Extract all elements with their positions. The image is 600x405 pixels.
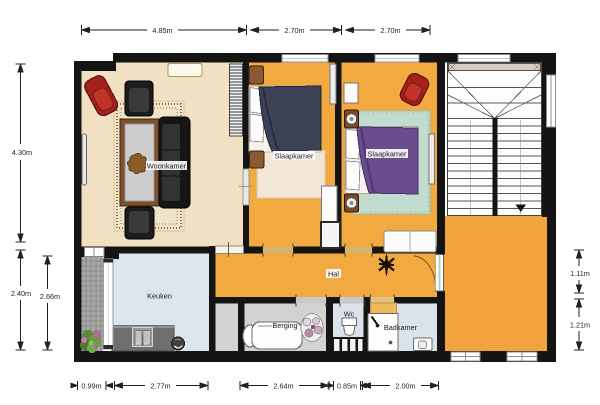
svg-text:Slaapkamer: Slaapkamer xyxy=(275,151,315,160)
svg-text:4.85m: 4.85m xyxy=(152,26,172,35)
svg-text:Badkamer: Badkamer xyxy=(384,323,418,332)
svg-text:Slaapkamer: Slaapkamer xyxy=(368,149,408,158)
svg-text:2.70m: 2.70m xyxy=(284,26,304,35)
svg-text:0.99m: 0.99m xyxy=(81,381,101,390)
svg-text:Keuken: Keuken xyxy=(147,292,172,301)
svg-text:2.66m: 2.66m xyxy=(40,292,60,301)
svg-text:Wc: Wc xyxy=(344,310,355,319)
svg-text:4.30m: 4.30m xyxy=(12,148,32,157)
svg-text:2.00m: 2.00m xyxy=(395,381,415,390)
svg-text:2.64m: 2.64m xyxy=(273,381,293,390)
svg-text:2.40m: 2.40m xyxy=(11,289,31,298)
svg-text:0.85m: 0.85m xyxy=(337,381,357,390)
svg-text:Woonkamer: Woonkamer xyxy=(147,161,187,170)
svg-text:2.70m: 2.70m xyxy=(380,26,400,35)
svg-text:1.21m: 1.21m xyxy=(570,321,590,330)
svg-text:2.77m: 2.77m xyxy=(150,381,170,390)
svg-text:Berging: Berging xyxy=(272,321,297,330)
svg-text:Hal: Hal xyxy=(328,269,339,278)
svg-text:1.11m: 1.11m xyxy=(570,269,590,278)
